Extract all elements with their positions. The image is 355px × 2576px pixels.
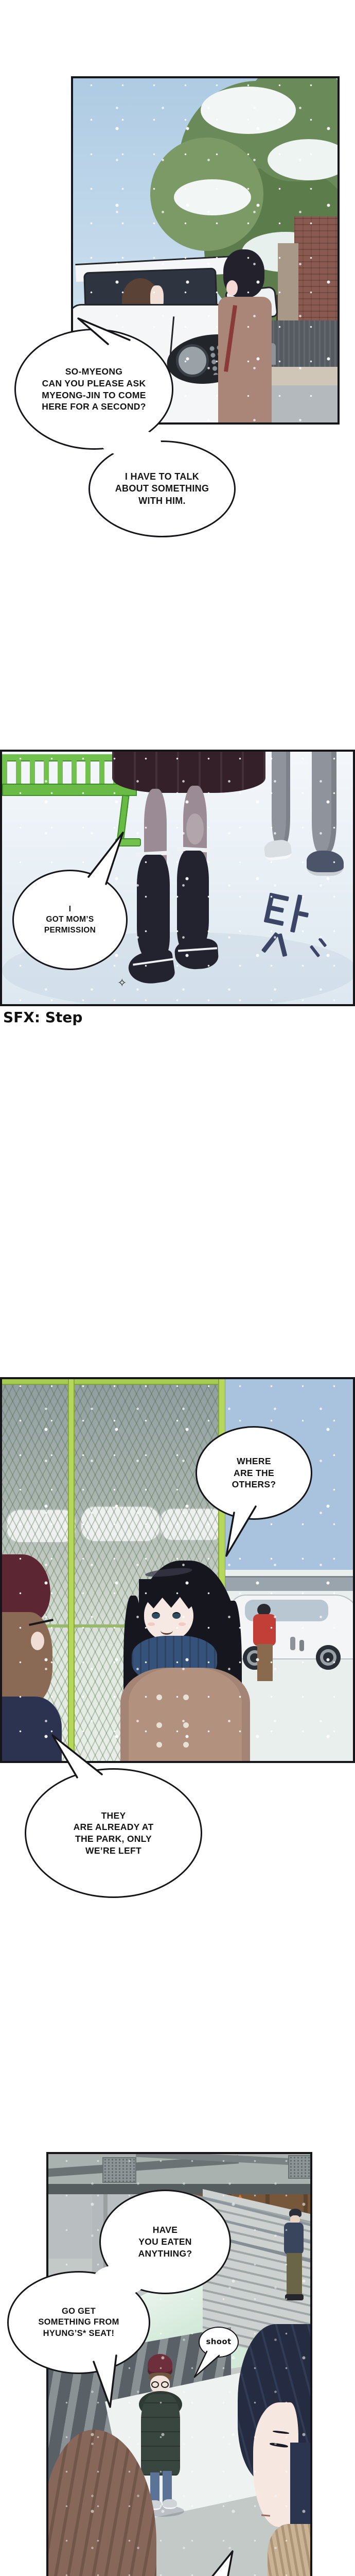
speech-bubble-go-get: GO GET SOMETHING FROM HYUNG’S* SEAT! bbox=[7, 2271, 150, 2374]
speech-bubble-shoot: shoot bbox=[199, 2327, 239, 2358]
red-jacket-person-pants bbox=[257, 1644, 273, 1681]
speech-bubble-already-at-park: THEY ARE ALREADY AT THE PARK, ONLY WE’RE… bbox=[25, 1768, 202, 1898]
panel-3 bbox=[0, 1377, 355, 1763]
speech-bubble-where-others: WHERE ARE THE OTHERS? bbox=[196, 1426, 312, 1520]
speech-bubble-where-others-text: WHERE ARE THE OTHERS? bbox=[232, 1455, 276, 1490]
fence-post bbox=[68, 1379, 75, 1763]
foreground-hair bbox=[2, 1612, 52, 1704]
person2-right-sneaker bbox=[307, 851, 344, 876]
coat-button bbox=[183, 1722, 189, 1728]
speech-bubble-go-get-text: GO GET SOMETHING FROM HYUNG’S* SEAT! bbox=[38, 2306, 119, 2339]
stairs-man-pants bbox=[287, 2253, 302, 2295]
sfx-stroke bbox=[277, 933, 288, 957]
boy-jeans-right bbox=[163, 2471, 172, 2503]
speech-bubble-have-you-eaten-text: HAVE YOU EATEN ANYTHING? bbox=[138, 2224, 192, 2259]
car-wheel bbox=[316, 1645, 341, 1670]
girl-coat bbox=[120, 1668, 250, 1763]
sfx-motion-dash bbox=[318, 937, 327, 947]
girl-blush-left bbox=[148, 1622, 155, 1626]
fence-mid-rail bbox=[2, 784, 137, 796]
snow-on-tree bbox=[201, 87, 296, 134]
boy-shoe bbox=[163, 2499, 177, 2509]
foreground-collar bbox=[2, 1697, 62, 1763]
girl-right-eye bbox=[172, 1612, 181, 1619]
speech-bubble-ask-somyeong: SO-MYEONG CAN YOU PLEASE ASK MYEONG-JIN … bbox=[14, 329, 173, 450]
standing-person-cheek bbox=[226, 280, 238, 296]
fence-top-wire bbox=[2, 1379, 226, 1385]
boy-glasses bbox=[161, 2381, 169, 2388]
boy-glasses bbox=[151, 2381, 159, 2388]
girl-skirt bbox=[112, 750, 265, 793]
coat-button bbox=[156, 1722, 162, 1728]
headlight-lens bbox=[176, 344, 209, 377]
fence-base bbox=[115, 838, 141, 846]
speech-bubble-ask-somyeong-text: SO-MYEONG CAN YOU PLEASE ASK MYEONG-JIN … bbox=[42, 366, 146, 413]
boy-jeans-left bbox=[150, 2472, 159, 2503]
knee-highlight bbox=[186, 814, 204, 844]
vent-grille bbox=[102, 2157, 136, 2183]
person2-right-pant bbox=[312, 752, 336, 853]
sfx-stroke bbox=[261, 932, 279, 953]
girl-left-eye bbox=[152, 1612, 160, 1619]
red-jacket-person-body bbox=[253, 1614, 276, 1646]
fur-trim bbox=[268, 2524, 312, 2576]
stairs-man-shoes bbox=[285, 2294, 304, 2300]
speech-bubble-shoot-text: shoot bbox=[206, 2337, 232, 2347]
building bbox=[278, 243, 298, 331]
coat-button bbox=[183, 1694, 189, 1700]
bg-figure bbox=[290, 1637, 295, 1650]
coat-button bbox=[183, 1742, 189, 1748]
sfx-stroke bbox=[298, 911, 309, 918]
page: 탓 ✧ SFX: Step bbox=[0, 0, 355, 2576]
sfx-step-caption: SFX: Step bbox=[3, 1009, 82, 1026]
foreground-ear bbox=[31, 1632, 44, 1650]
coat-button bbox=[156, 1694, 162, 1700]
sfx-stroke bbox=[264, 918, 284, 926]
guardrail bbox=[225, 1576, 355, 1591]
coat-button bbox=[156, 1742, 162, 1748]
speech-bubble-moms-permission-text: I GOT MOM’S PERMISSION bbox=[44, 904, 96, 935]
speech-bubble-already-at-park-text: THEY ARE ALREADY AT THE PARK, ONLY WE’RE… bbox=[74, 1810, 154, 1857]
speech-bubble-have-you-eaten: HAVE YOU EATEN ANYTHING? bbox=[99, 2190, 231, 2294]
left-boot-shaft bbox=[137, 855, 170, 958]
snow-on-tree bbox=[174, 179, 251, 215]
speech-bubble-moms-permission: I GOT MOM’S PERMISSION bbox=[12, 870, 128, 970]
bg-figure bbox=[299, 1640, 304, 1651]
person2-left-pant bbox=[272, 752, 290, 845]
speech-bubble-talk-with-him-text: I HAVE TO TALK ABOUT SOMETHING WITH HIM. bbox=[115, 471, 209, 507]
speech-bubble-talk-with-him: I HAVE TO TALK ABOUT SOMETHING WITH HIM. bbox=[88, 440, 236, 537]
sfx-korean-step: 탓 bbox=[257, 889, 336, 965]
sparkle-icon: ✧ bbox=[117, 976, 127, 990]
right-boot-shaft bbox=[177, 851, 209, 950]
girl-smile bbox=[161, 1626, 173, 1635]
stairs-man-shirt bbox=[284, 2223, 304, 2255]
sfx-motion-dash bbox=[310, 945, 321, 957]
vent-grille bbox=[288, 2155, 312, 2179]
boy-coat bbox=[141, 2394, 180, 2476]
girl-blush-right bbox=[179, 1622, 186, 1626]
